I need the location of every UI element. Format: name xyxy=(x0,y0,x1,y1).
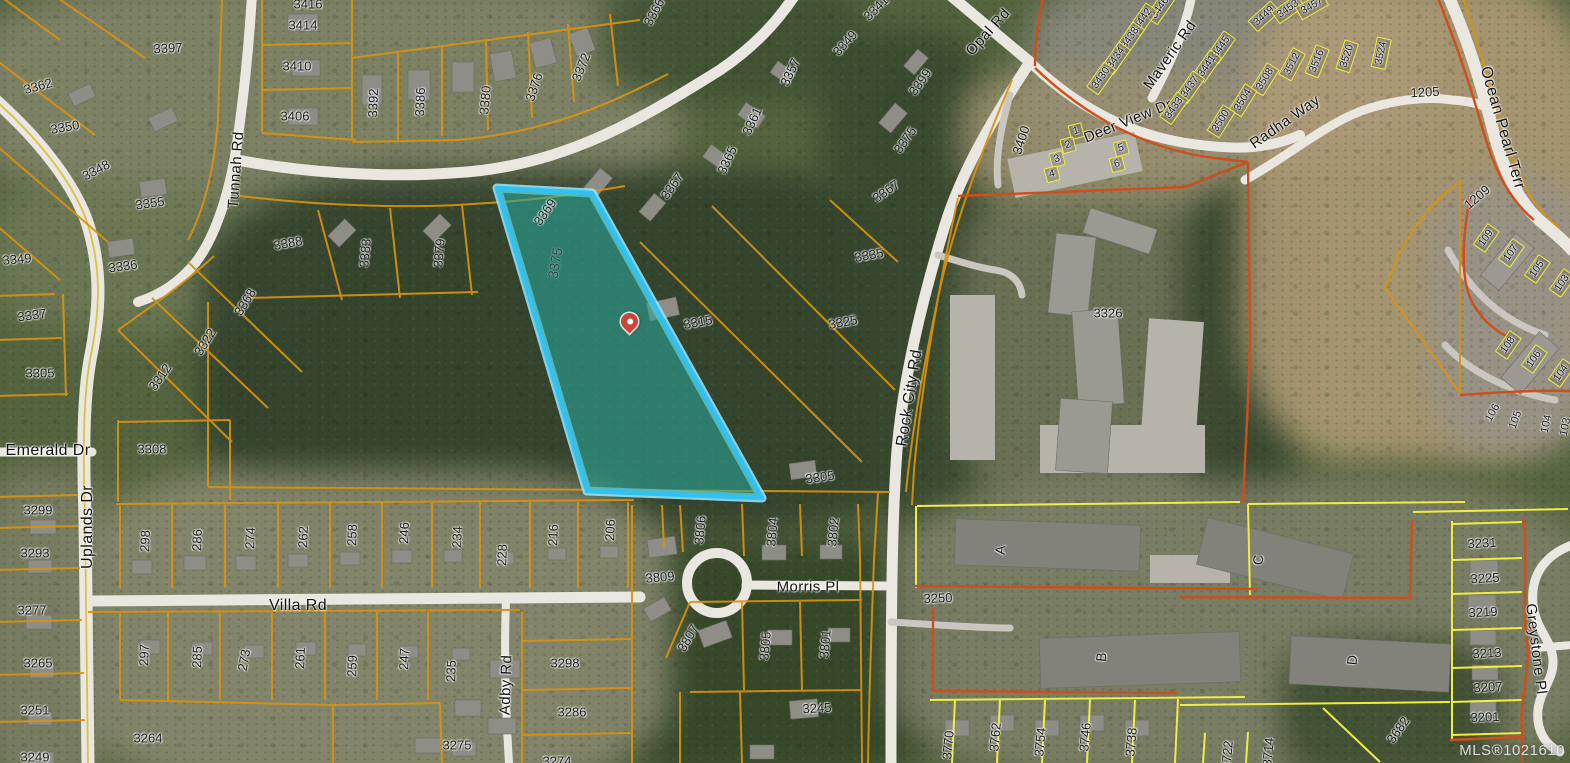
boundary-lines xyxy=(915,0,1570,762)
mls-watermark: MLS®1021610 xyxy=(1459,742,1565,759)
map-canvas[interactable]: Tunnah RdOpal RdDeer View DrMaveric RdRa… xyxy=(0,0,1570,763)
pin-dot xyxy=(625,317,633,325)
highlighted-parcel[interactable] xyxy=(497,188,762,498)
highlighted-parcel-fill xyxy=(497,188,762,498)
map-overlay-graphics xyxy=(0,0,1570,763)
